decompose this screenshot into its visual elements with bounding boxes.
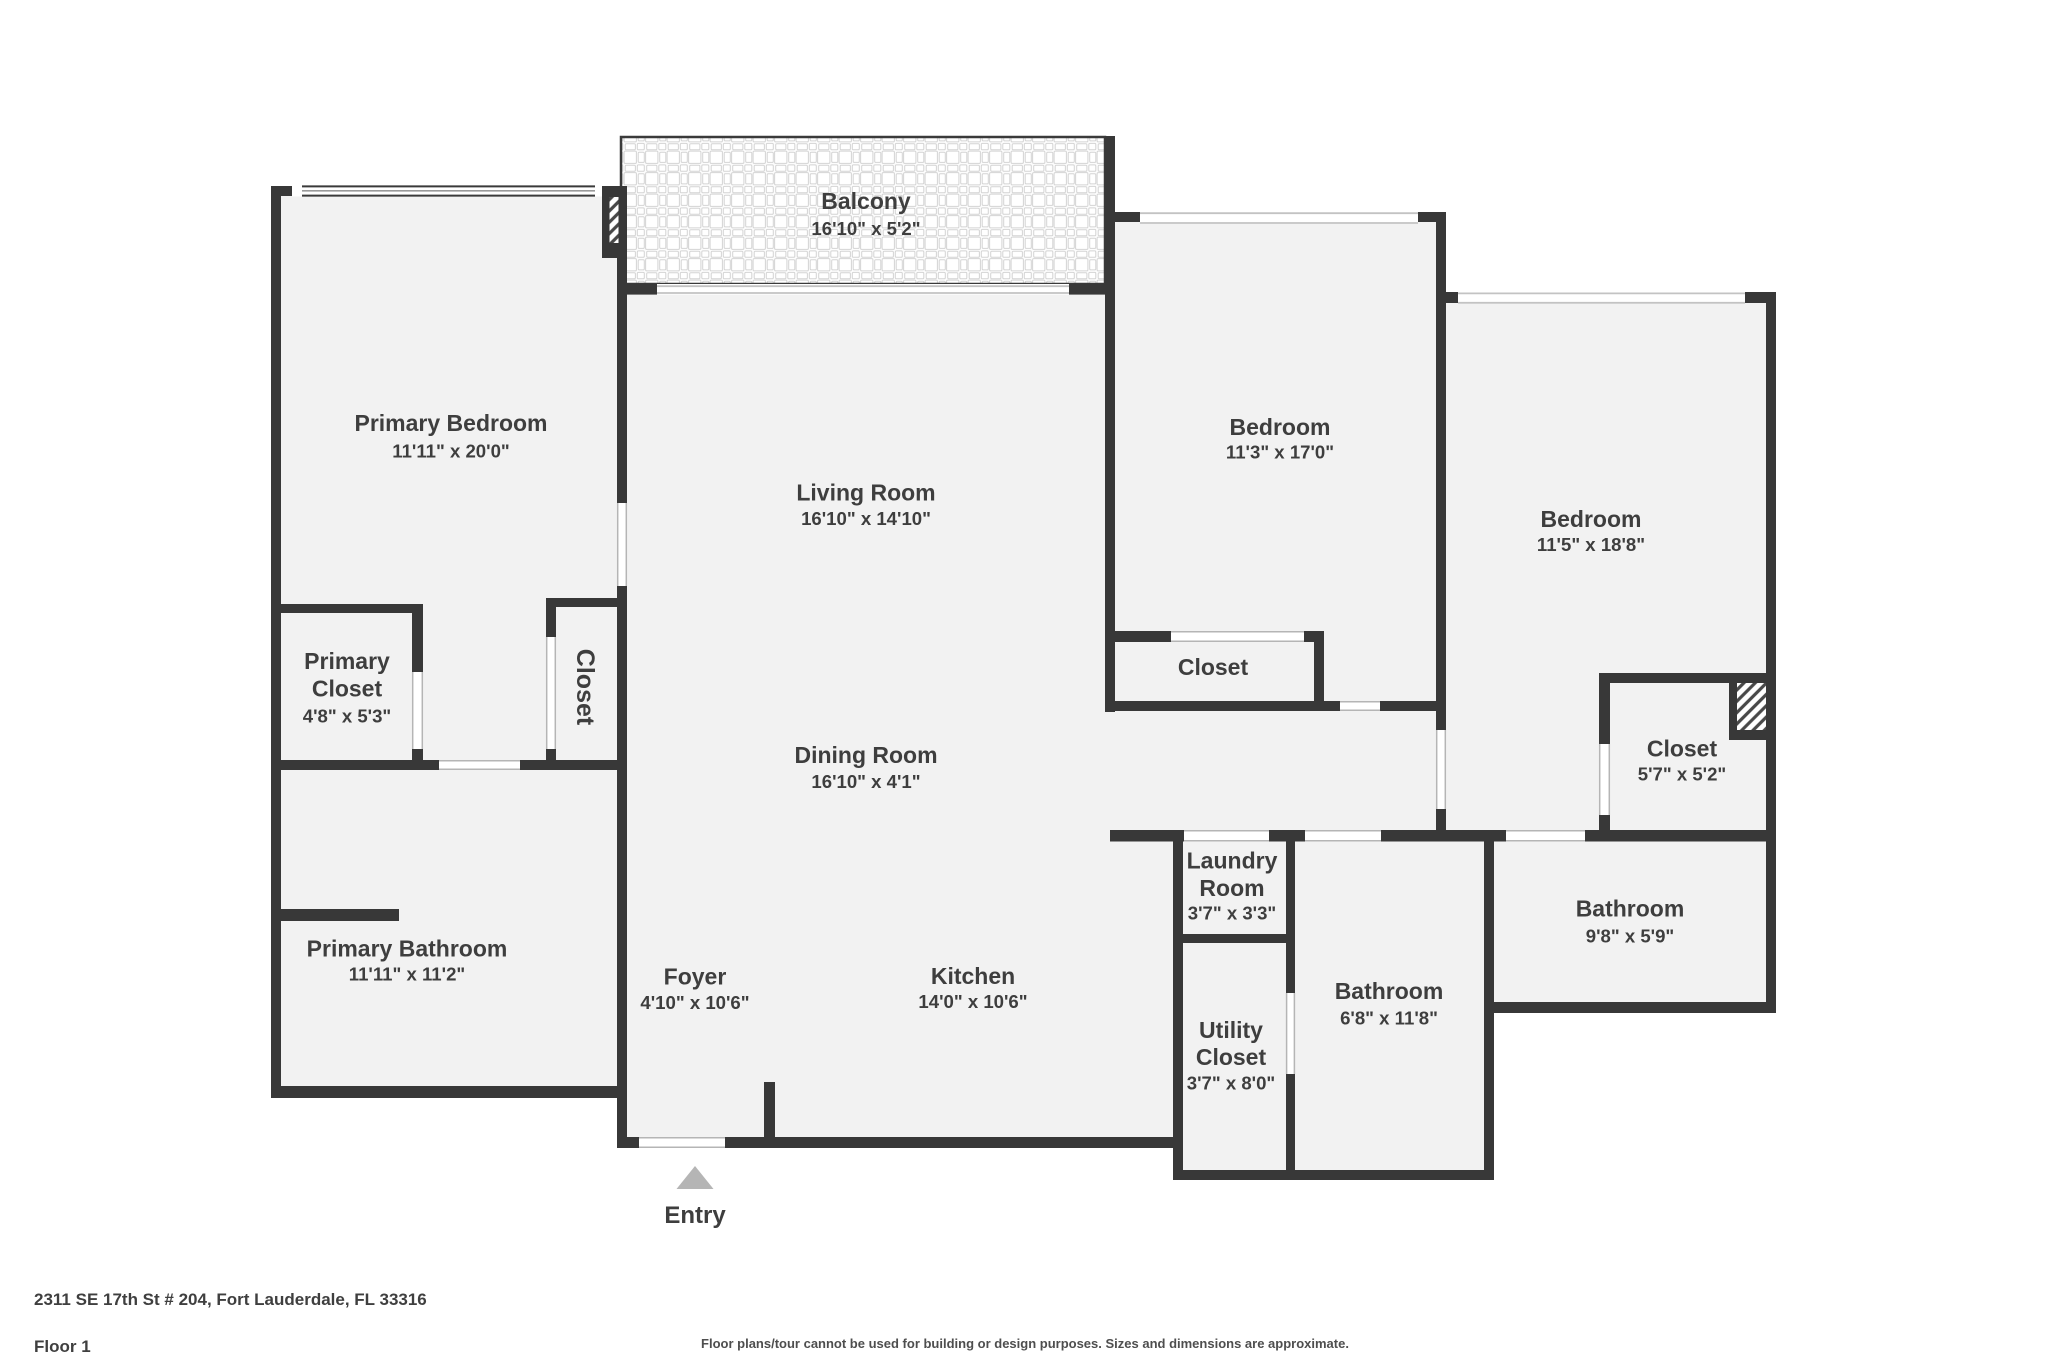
- svg-text:16'10" x 14'10": 16'10" x 14'10": [801, 508, 931, 529]
- svg-text:2311 SE 17th St # 204, Fort La: 2311 SE 17th St # 204, Fort Lauderdale, …: [34, 1290, 427, 1309]
- svg-text:Primary: Primary: [304, 648, 390, 674]
- svg-text:Bathroom: Bathroom: [1576, 896, 1685, 922]
- svg-text:5'7" x 5'2": 5'7" x 5'2": [1638, 764, 1727, 785]
- svg-text:14'0" x 10'6": 14'0" x 10'6": [918, 991, 1027, 1012]
- svg-text:Closet: Closet: [1647, 736, 1718, 762]
- svg-text:3'7" x 3'3": 3'7" x 3'3": [1188, 903, 1277, 924]
- svg-text:Floor plans/tour cannot be use: Floor plans/tour cannot be used for buil…: [701, 1336, 1349, 1351]
- svg-text:Primary Bedroom: Primary Bedroom: [354, 410, 547, 436]
- svg-text:Bathroom: Bathroom: [1335, 978, 1444, 1004]
- svg-text:11'5" x 18'8": 11'5" x 18'8": [1537, 534, 1645, 555]
- svg-text:Bedroom: Bedroom: [1541, 506, 1642, 532]
- svg-text:Closet: Closet: [571, 649, 599, 726]
- svg-text:4'10" x 10'6": 4'10" x 10'6": [640, 992, 749, 1013]
- svg-text:Dining Room: Dining Room: [794, 742, 937, 768]
- svg-text:Balcony: Balcony: [821, 188, 911, 214]
- svg-text:Foyer: Foyer: [664, 964, 727, 990]
- svg-text:3'7" x 8'0": 3'7" x 8'0": [1187, 1073, 1276, 1094]
- svg-text:Room: Room: [1199, 875, 1264, 901]
- svg-text:Closet: Closet: [1196, 1044, 1267, 1070]
- svg-text:16'10" x 5'2": 16'10" x 5'2": [811, 218, 920, 239]
- svg-text:Kitchen: Kitchen: [931, 963, 1015, 989]
- svg-text:Floor 1: Floor 1: [34, 1337, 91, 1356]
- svg-text:11'11" x 11'2": 11'11" x 11'2": [349, 964, 465, 985]
- svg-text:Entry: Entry: [664, 1202, 726, 1229]
- svg-text:6'8" x 11'8": 6'8" x 11'8": [1340, 1008, 1438, 1029]
- svg-text:4'8" x 5'3": 4'8" x 5'3": [303, 706, 392, 727]
- svg-text:11'11" x 20'0": 11'11" x 20'0": [392, 441, 509, 462]
- svg-text:Closet: Closet: [312, 676, 383, 702]
- svg-text:Living Room: Living Room: [796, 480, 935, 506]
- svg-text:9'8" x 5'9": 9'8" x 5'9": [1586, 926, 1675, 947]
- svg-text:Primary Bathroom: Primary Bathroom: [307, 936, 508, 962]
- svg-text:Closet: Closet: [1178, 654, 1249, 680]
- svg-text:16'10" x 4'1": 16'10" x 4'1": [811, 771, 920, 792]
- svg-text:Utility: Utility: [1199, 1017, 1263, 1043]
- svg-text:Bedroom: Bedroom: [1230, 414, 1331, 440]
- svg-text:Laundry: Laundry: [1187, 848, 1278, 874]
- svg-text:11'3" x 17'0": 11'3" x 17'0": [1226, 442, 1334, 463]
